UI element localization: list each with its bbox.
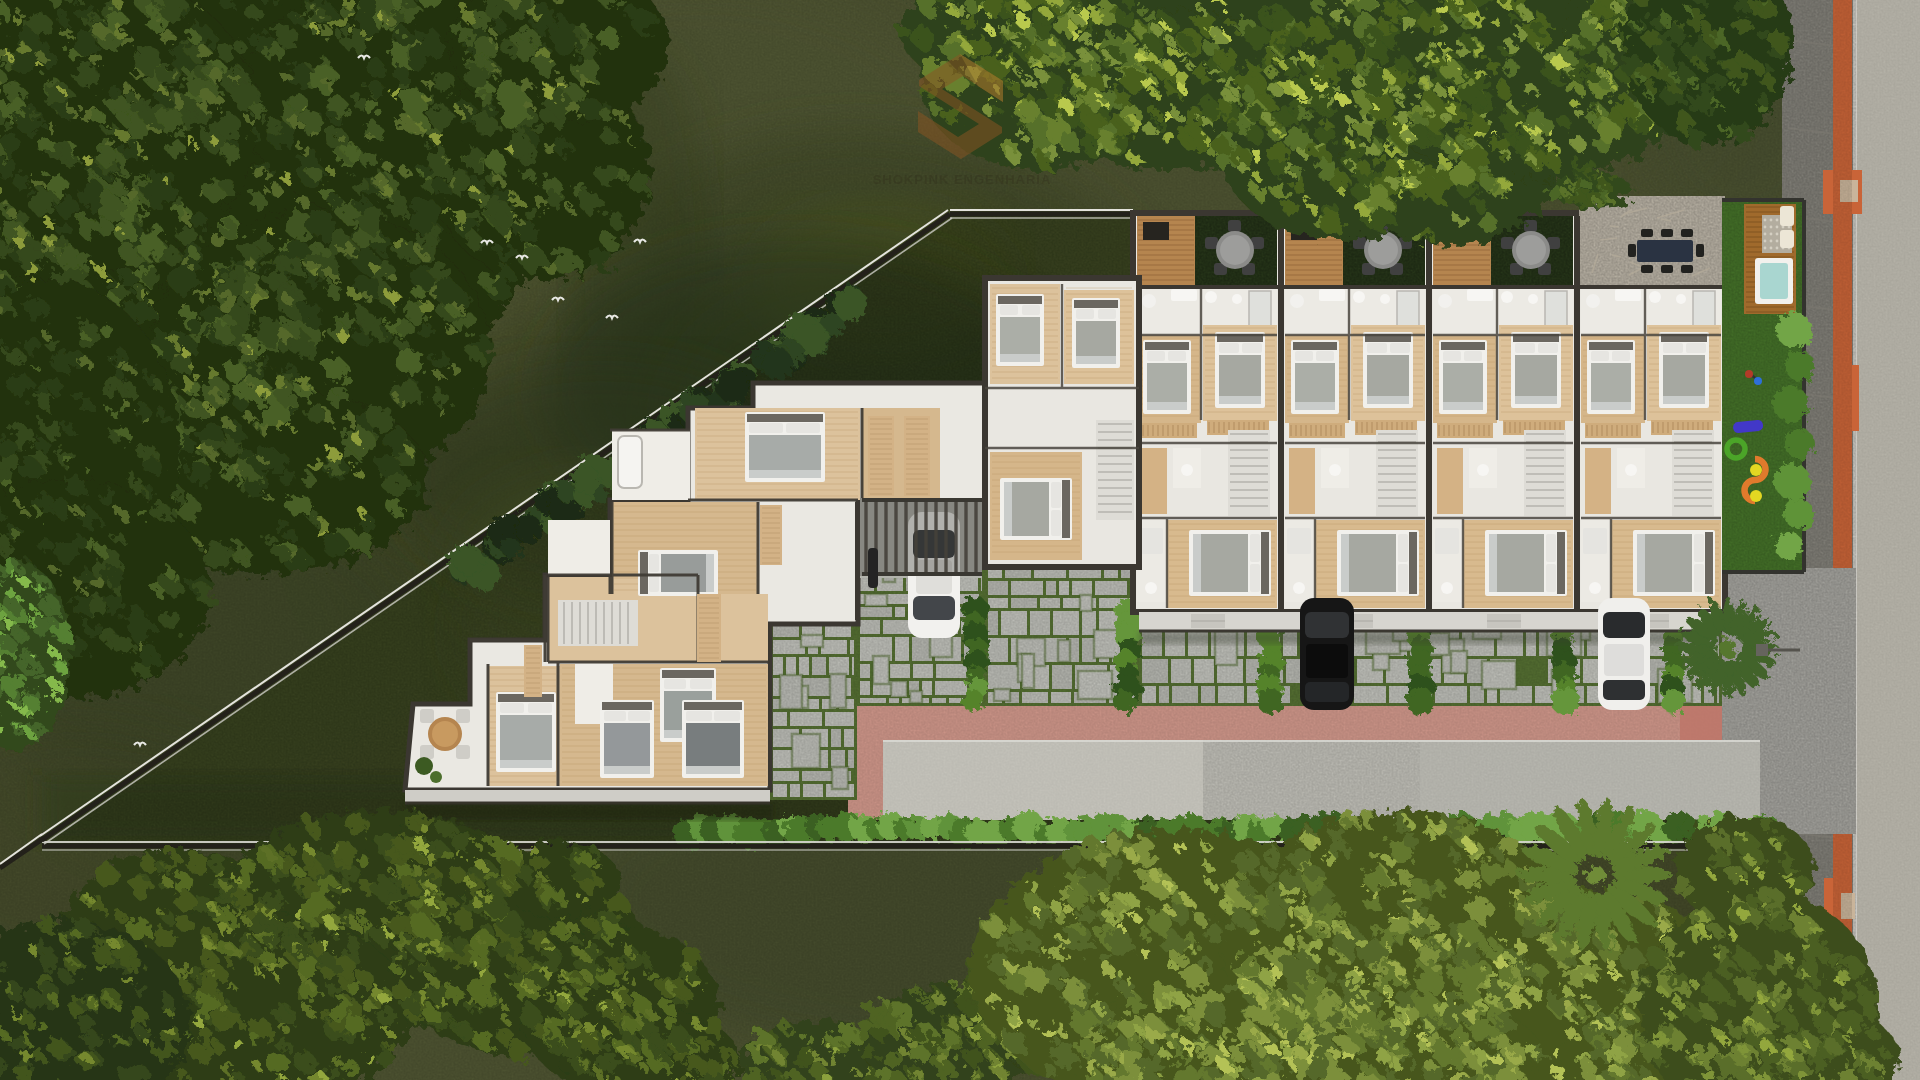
svg-text:SHOKPINK ENGENHARIA: SHOKPINK ENGENHARIA — [873, 172, 1052, 187]
